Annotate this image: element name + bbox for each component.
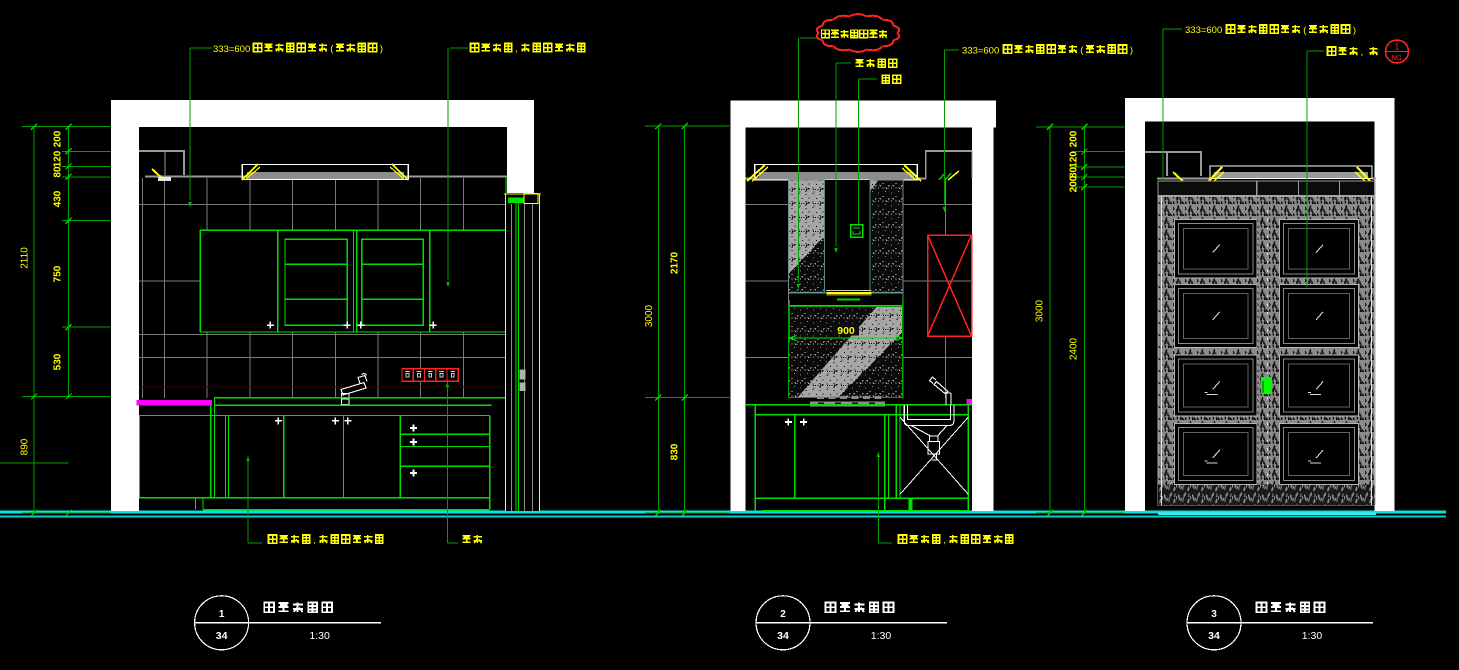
- svg-text:1:30: 1:30: [309, 630, 330, 642]
- svg-text:120: 120: [1069, 151, 1080, 168]
- svg-text:3: 3: [1211, 609, 1217, 620]
- svg-text:900: 900: [837, 325, 855, 337]
- svg-text:890: 890: [20, 438, 31, 455]
- svg-text:530: 530: [53, 353, 64, 370]
- svg-text:3000: 3000: [1035, 299, 1046, 322]
- svg-text:2: 2: [780, 609, 786, 620]
- svg-text:120: 120: [53, 150, 64, 167]
- svg-text:): ): [380, 44, 383, 55]
- svg-text:34: 34: [777, 630, 789, 642]
- svg-text:): ): [1130, 45, 1133, 56]
- svg-text:,: ,: [1361, 47, 1364, 58]
- svg-text:2170: 2170: [670, 251, 681, 274]
- svg-text:80: 80: [53, 166, 64, 178]
- svg-text:,: ,: [943, 535, 946, 546]
- svg-text:200: 200: [1069, 175, 1080, 192]
- svg-text:M1: M1: [1392, 53, 1402, 62]
- svg-text:3000: 3000: [644, 304, 655, 327]
- svg-text:333=600: 333=600: [213, 44, 250, 55]
- svg-text:,: ,: [313, 535, 316, 546]
- svg-text:1:30: 1:30: [871, 630, 892, 642]
- svg-text:2110: 2110: [20, 247, 31, 269]
- svg-text:1: 1: [1395, 43, 1400, 52]
- svg-text:750: 750: [53, 265, 64, 282]
- svg-text:1: 1: [219, 609, 225, 620]
- svg-text:): ): [1353, 25, 1356, 36]
- svg-text:430: 430: [53, 190, 64, 207]
- svg-text:34: 34: [216, 630, 228, 642]
- svg-text:830: 830: [670, 443, 681, 460]
- svg-text:333=600: 333=600: [962, 46, 999, 57]
- svg-text:34: 34: [1208, 630, 1220, 642]
- svg-text:333=600: 333=600: [1185, 25, 1222, 36]
- svg-text:1:30: 1:30: [1302, 630, 1323, 642]
- svg-text:200: 200: [53, 130, 64, 147]
- svg-text:,: ,: [515, 44, 518, 55]
- svg-text:200: 200: [1069, 130, 1080, 147]
- svg-text:2400: 2400: [1069, 337, 1080, 360]
